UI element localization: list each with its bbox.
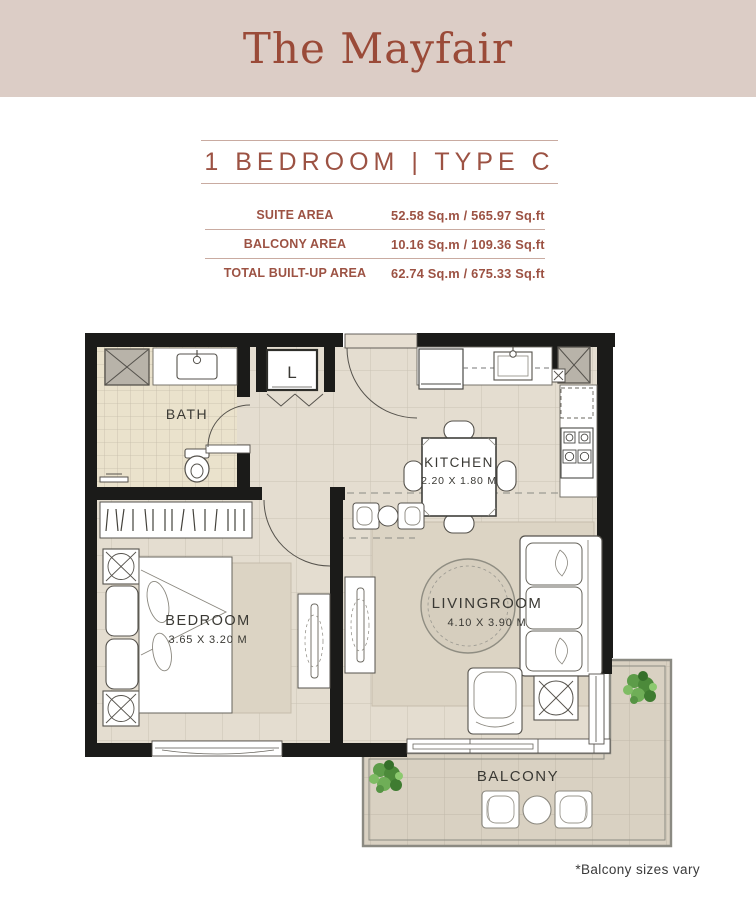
balcony-chair	[555, 791, 592, 828]
balcony-label: BALCONY	[477, 768, 559, 785]
livingroom-label: LIVINGROOM	[432, 595, 543, 612]
area-value: 52.58 Sq.m / 565.97 Sq.ft	[391, 208, 545, 223]
floor-plan: L KITCHEN 2.20	[85, 330, 675, 852]
bedroom-dims: 3.65 X 3.20 M	[169, 634, 248, 646]
toilet-icon	[185, 449, 209, 482]
bedroom-label: BEDROOM	[165, 613, 250, 629]
side-table-icon	[378, 506, 398, 526]
wardrobe	[100, 502, 252, 538]
kitchen-counter-top	[417, 347, 552, 389]
headboard	[106, 586, 138, 636]
livingroom-dims: 4.10 X 3.90 M	[448, 617, 527, 629]
armchair	[468, 668, 522, 734]
laundry-closet-label: L	[287, 363, 296, 382]
living-sliding-door	[407, 739, 610, 753]
balcony-footnote: *Balcony sizes vary	[0, 862, 700, 877]
area-label: TOTAL BUILT-UP AREA	[205, 266, 385, 280]
bath-label: BATH	[166, 406, 208, 422]
area-row-balcony: BALCONY AREA 10.16 Sq.m / 109.36 Sq.ft	[205, 229, 545, 258]
sink-icon	[193, 356, 200, 363]
living-right-window	[589, 674, 604, 744]
tv-console	[345, 577, 375, 673]
shaft-top-right	[552, 347, 590, 383]
area-label: SUITE AREA	[205, 208, 385, 222]
bedroom-window	[152, 741, 282, 756]
headboard	[106, 639, 138, 689]
kitchen-counter-right	[560, 385, 597, 497]
side-seating	[353, 503, 424, 529]
area-value: 62.74 Sq.m / 675.33 Sq.ft	[391, 266, 545, 281]
nightstand-icon	[103, 549, 139, 584]
stove-icon	[561, 428, 593, 478]
kitchen-dims: 2.20 X 1.80 M	[421, 475, 497, 487]
balcony-table-icon	[523, 796, 551, 824]
page-title: The Mayfair	[243, 24, 513, 73]
unit-type-title: 1 BEDROOM | TYPE C	[204, 148, 554, 177]
fridge-icon	[419, 349, 463, 389]
dining-chair	[444, 514, 474, 533]
coffee-table	[534, 676, 578, 720]
area-table: SUITE AREA 52.58 Sq.m / 565.97 Sq.ft BAL…	[205, 201, 545, 287]
area-row-total: TOTAL BUILT-UP AREA 62.74 Sq.m / 675.33 …	[205, 258, 545, 287]
unit-type-title-block: 1 BEDROOM | TYPE C	[201, 140, 558, 184]
shaft-top-left	[105, 349, 149, 385]
kitchen-label: KITCHEN	[424, 455, 494, 470]
area-label: BALCONY AREA	[205, 237, 385, 251]
area-value: 10.16 Sq.m / 109.36 Sq.ft	[391, 237, 545, 252]
header-banner: The Mayfair	[0, 0, 756, 97]
dining-chair	[444, 421, 474, 440]
area-row-suite: SUITE AREA 52.58 Sq.m / 565.97 Sq.ft	[205, 201, 545, 229]
balcony-chair	[482, 791, 519, 828]
dining-chair	[497, 461, 516, 491]
bath-vanity	[153, 348, 237, 385]
bedroom-dresser	[298, 594, 330, 688]
nightstand-icon	[103, 691, 139, 726]
